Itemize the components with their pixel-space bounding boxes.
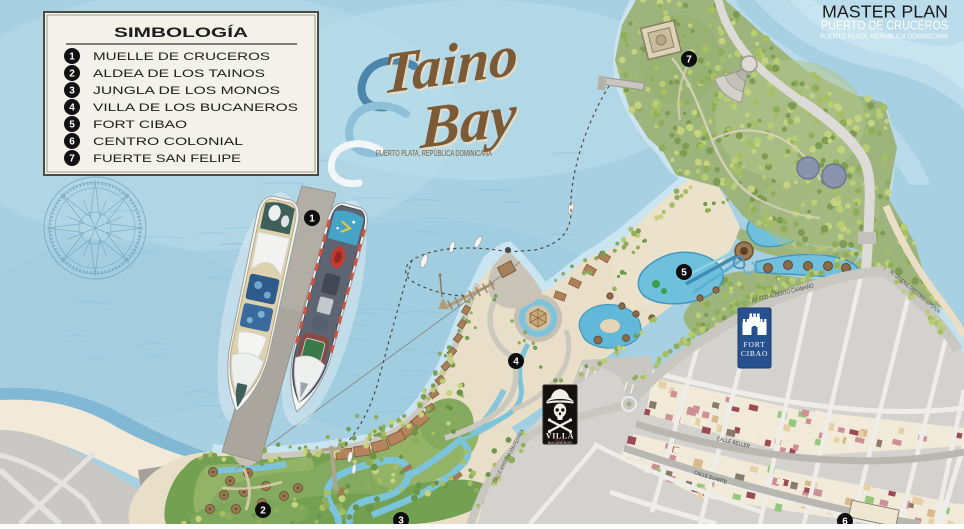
svg-text:ALDEA DE LOS TAINOS: ALDEA DE LOS TAINOS	[93, 68, 265, 80]
svg-text:5: 5	[681, 268, 687, 279]
svg-text:3: 3	[398, 516, 404, 525]
svg-text:FORT: FORT	[744, 340, 766, 349]
svg-text:3: 3	[69, 86, 75, 97]
svg-text:SIMBOLOGÍA: SIMBOLOGÍA	[114, 25, 248, 40]
svg-text:MUELLE DE CRUCEROS: MUELLE DE CRUCEROS	[93, 51, 270, 63]
svg-text:6: 6	[69, 137, 75, 148]
svg-text:PUERTO PLATA, REPÚBLICA DOMINI: PUERTO PLATA, REPÚBLICA DOMINICANA	[376, 149, 492, 158]
svg-text:PUERTO PLATA, REPUBLICA DOMINI: PUERTO PLATA, REPUBLICA DOMINICANA	[820, 32, 948, 41]
svg-text:2: 2	[260, 506, 266, 517]
svg-text:4: 4	[69, 103, 75, 114]
svg-text:1: 1	[69, 52, 75, 63]
svg-text:7: 7	[69, 154, 75, 165]
svg-text:FUERTE SAN FELIPE: FUERTE SAN FELIPE	[93, 153, 241, 165]
svg-text:1: 1	[309, 214, 315, 225]
svg-text:2: 2	[69, 69, 75, 80]
svg-text:CENTRO COLONIAL: CENTRO COLONIAL	[93, 136, 243, 148]
svg-text:5: 5	[69, 120, 75, 131]
svg-text:PUERTO DE CRUCEROS: PUERTO DE CRUCEROS	[821, 19, 948, 33]
svg-text:6: 6	[842, 517, 848, 525]
svg-text:VILLA DE LOS BUCANEROS: VILLA DE LOS BUCANEROS	[93, 102, 298, 114]
svg-text:7: 7	[686, 55, 692, 66]
svg-text:JUNGLA DE LOS MONOS: JUNGLA DE LOS MONOS	[93, 85, 280, 97]
svg-text:FORT CIBAO: FORT CIBAO	[93, 119, 188, 131]
svg-text:4: 4	[513, 357, 519, 368]
svg-text:CIBAO: CIBAO	[741, 349, 768, 358]
svg-text:BUCANEROS: BUCANEROS	[548, 441, 572, 445]
